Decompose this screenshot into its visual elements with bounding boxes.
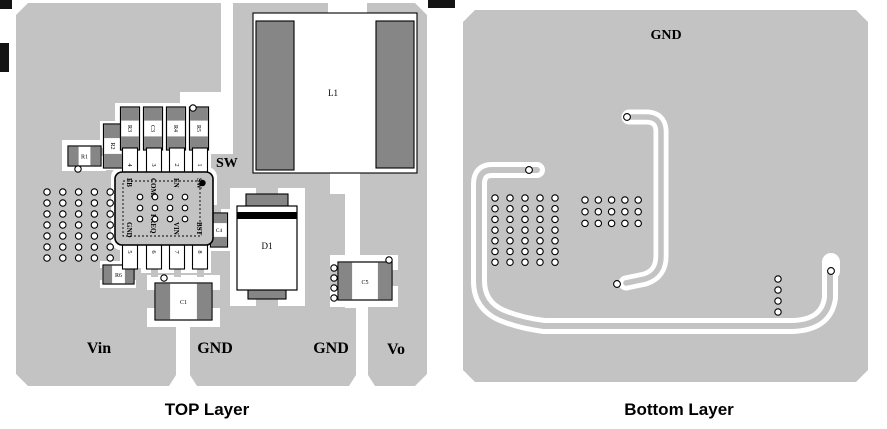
via — [60, 189, 66, 195]
via — [137, 205, 143, 211]
via — [44, 211, 50, 217]
via — [775, 276, 781, 282]
via — [91, 222, 97, 228]
via — [507, 227, 513, 233]
via — [507, 238, 513, 244]
via — [522, 227, 528, 233]
r5-label: R5 — [195, 125, 201, 132]
via — [91, 233, 97, 239]
via — [492, 259, 498, 265]
via — [44, 244, 50, 250]
via — [635, 209, 641, 215]
via — [75, 233, 81, 239]
ic-pin-vin: VIN — [172, 222, 180, 235]
via — [75, 222, 81, 228]
net-label-vin: Vin — [87, 340, 111, 357]
via — [91, 211, 97, 217]
ic-pin-gnd: GND — [125, 222, 133, 238]
via — [775, 298, 781, 304]
via — [75, 244, 81, 250]
via — [522, 216, 528, 222]
via — [44, 255, 50, 261]
c5-label: C5 — [361, 280, 368, 286]
bottom-layer-caption: Bottom Layer — [549, 400, 809, 420]
via — [595, 197, 601, 203]
via — [552, 206, 558, 212]
via — [552, 238, 558, 244]
via — [507, 195, 513, 201]
via — [507, 259, 513, 265]
via — [507, 206, 513, 212]
via — [552, 248, 558, 254]
via — [582, 220, 588, 226]
net-label-gnd1: GND — [197, 340, 233, 357]
bottom-layer-pcb: GND — [463, 10, 868, 382]
net-label-vo: Vo — [387, 341, 405, 358]
via — [552, 259, 558, 265]
via — [775, 309, 781, 315]
capacitor-c1: C1 — [155, 283, 212, 320]
c3-label: C3 — [149, 125, 155, 132]
net-label-sw: SW — [216, 156, 238, 171]
via — [152, 205, 158, 211]
ic-pad-2: 2 — [173, 163, 180, 166]
capacitor-c5: C5 — [338, 262, 392, 300]
via — [492, 238, 498, 244]
via — [91, 244, 97, 250]
via — [182, 205, 188, 211]
via — [522, 195, 528, 201]
via — [91, 255, 97, 261]
r1-label: R1 — [81, 155, 88, 161]
via — [107, 211, 113, 217]
via — [152, 194, 158, 200]
via — [107, 200, 113, 206]
ic-pad-3: 3 — [150, 163, 157, 166]
via — [60, 222, 66, 228]
l1-pad-left — [256, 21, 294, 170]
via — [60, 200, 66, 206]
via — [182, 194, 188, 200]
via — [622, 197, 628, 203]
via — [537, 238, 543, 244]
via — [537, 216, 543, 222]
ic-pad-8: 8 — [196, 250, 203, 253]
via — [582, 197, 588, 203]
net-label-gnd2: GND — [313, 340, 349, 357]
resistor-r1: R1 — [68, 146, 101, 166]
ic-pin-fb: FB — [125, 178, 133, 187]
via — [60, 244, 66, 250]
via — [582, 209, 588, 215]
via — [137, 216, 143, 222]
c4-label: C4 — [216, 228, 223, 234]
via — [622, 220, 628, 226]
via — [537, 195, 543, 201]
via — [107, 255, 113, 261]
via — [775, 287, 781, 293]
via — [75, 211, 81, 217]
via — [60, 233, 66, 239]
pcb-artwork: L1 D1 R1 R2 — [0, 0, 887, 395]
r4-label: R4 — [172, 125, 178, 132]
via — [608, 197, 614, 203]
via — [608, 220, 614, 226]
capacitor-c3: C3 — [144, 107, 163, 150]
via — [107, 244, 113, 250]
resistor-r3: R3 — [121, 107, 140, 150]
via — [622, 209, 628, 215]
top-layer-caption: TOP Layer — [77, 400, 337, 420]
c1-label: C1 — [180, 300, 187, 306]
ic-pin-sw: SW — [195, 178, 203, 189]
via — [537, 227, 543, 233]
d1-label: D1 — [262, 241, 273, 251]
via — [167, 194, 173, 200]
via — [152, 216, 158, 222]
via — [635, 197, 641, 203]
pcb-layout-figure: L1 D1 R1 R2 — [0, 0, 887, 429]
via — [137, 194, 143, 200]
inductor-l1: L1 — [253, 13, 417, 173]
via — [75, 200, 81, 206]
via — [522, 259, 528, 265]
via — [537, 259, 543, 265]
via — [60, 255, 66, 261]
via — [167, 205, 173, 211]
via — [552, 195, 558, 201]
via — [522, 248, 528, 254]
r6-label: R6 — [115, 273, 122, 279]
via — [507, 216, 513, 222]
via — [635, 220, 641, 226]
net-label-gnd-bottom: GND — [650, 28, 681, 43]
via — [44, 233, 50, 239]
r2-label: R2 — [109, 142, 115, 149]
via — [44, 222, 50, 228]
via — [492, 206, 498, 212]
via — [167, 216, 173, 222]
via — [537, 248, 543, 254]
top-layer-pcb: L1 D1 R1 R2 — [16, 3, 427, 386]
via — [522, 238, 528, 244]
via — [492, 216, 498, 222]
via — [75, 255, 81, 261]
r3-label: R3 — [126, 125, 132, 132]
via — [44, 189, 50, 195]
l1-pad-right — [376, 21, 414, 168]
via — [182, 216, 188, 222]
ic-pad-5: 5 — [126, 250, 133, 253]
via — [492, 227, 498, 233]
via — [75, 189, 81, 195]
ic-pad-1: 1 — [196, 163, 203, 166]
ic-pin-sw-top: EN — [172, 178, 180, 188]
via — [552, 216, 558, 222]
via — [507, 248, 513, 254]
ic-pin-bst: BST — [195, 222, 203, 236]
d1-cathode-band — [237, 212, 297, 219]
resistor-r5: R5 — [190, 107, 209, 150]
resistor-r2: R2 — [104, 124, 123, 168]
via — [492, 248, 498, 254]
diode-d1: D1 — [237, 194, 297, 299]
via — [522, 206, 528, 212]
via — [552, 227, 558, 233]
via — [537, 206, 543, 212]
via — [107, 233, 113, 239]
via — [492, 195, 498, 201]
l1-label: L1 — [328, 88, 338, 98]
via — [91, 200, 97, 206]
via — [107, 189, 113, 195]
via — [107, 222, 113, 228]
via — [60, 211, 66, 217]
via — [595, 220, 601, 226]
resistor-r4: R4 — [167, 107, 186, 150]
via — [91, 189, 97, 195]
via — [595, 209, 601, 215]
via — [44, 200, 50, 206]
via — [608, 209, 614, 215]
